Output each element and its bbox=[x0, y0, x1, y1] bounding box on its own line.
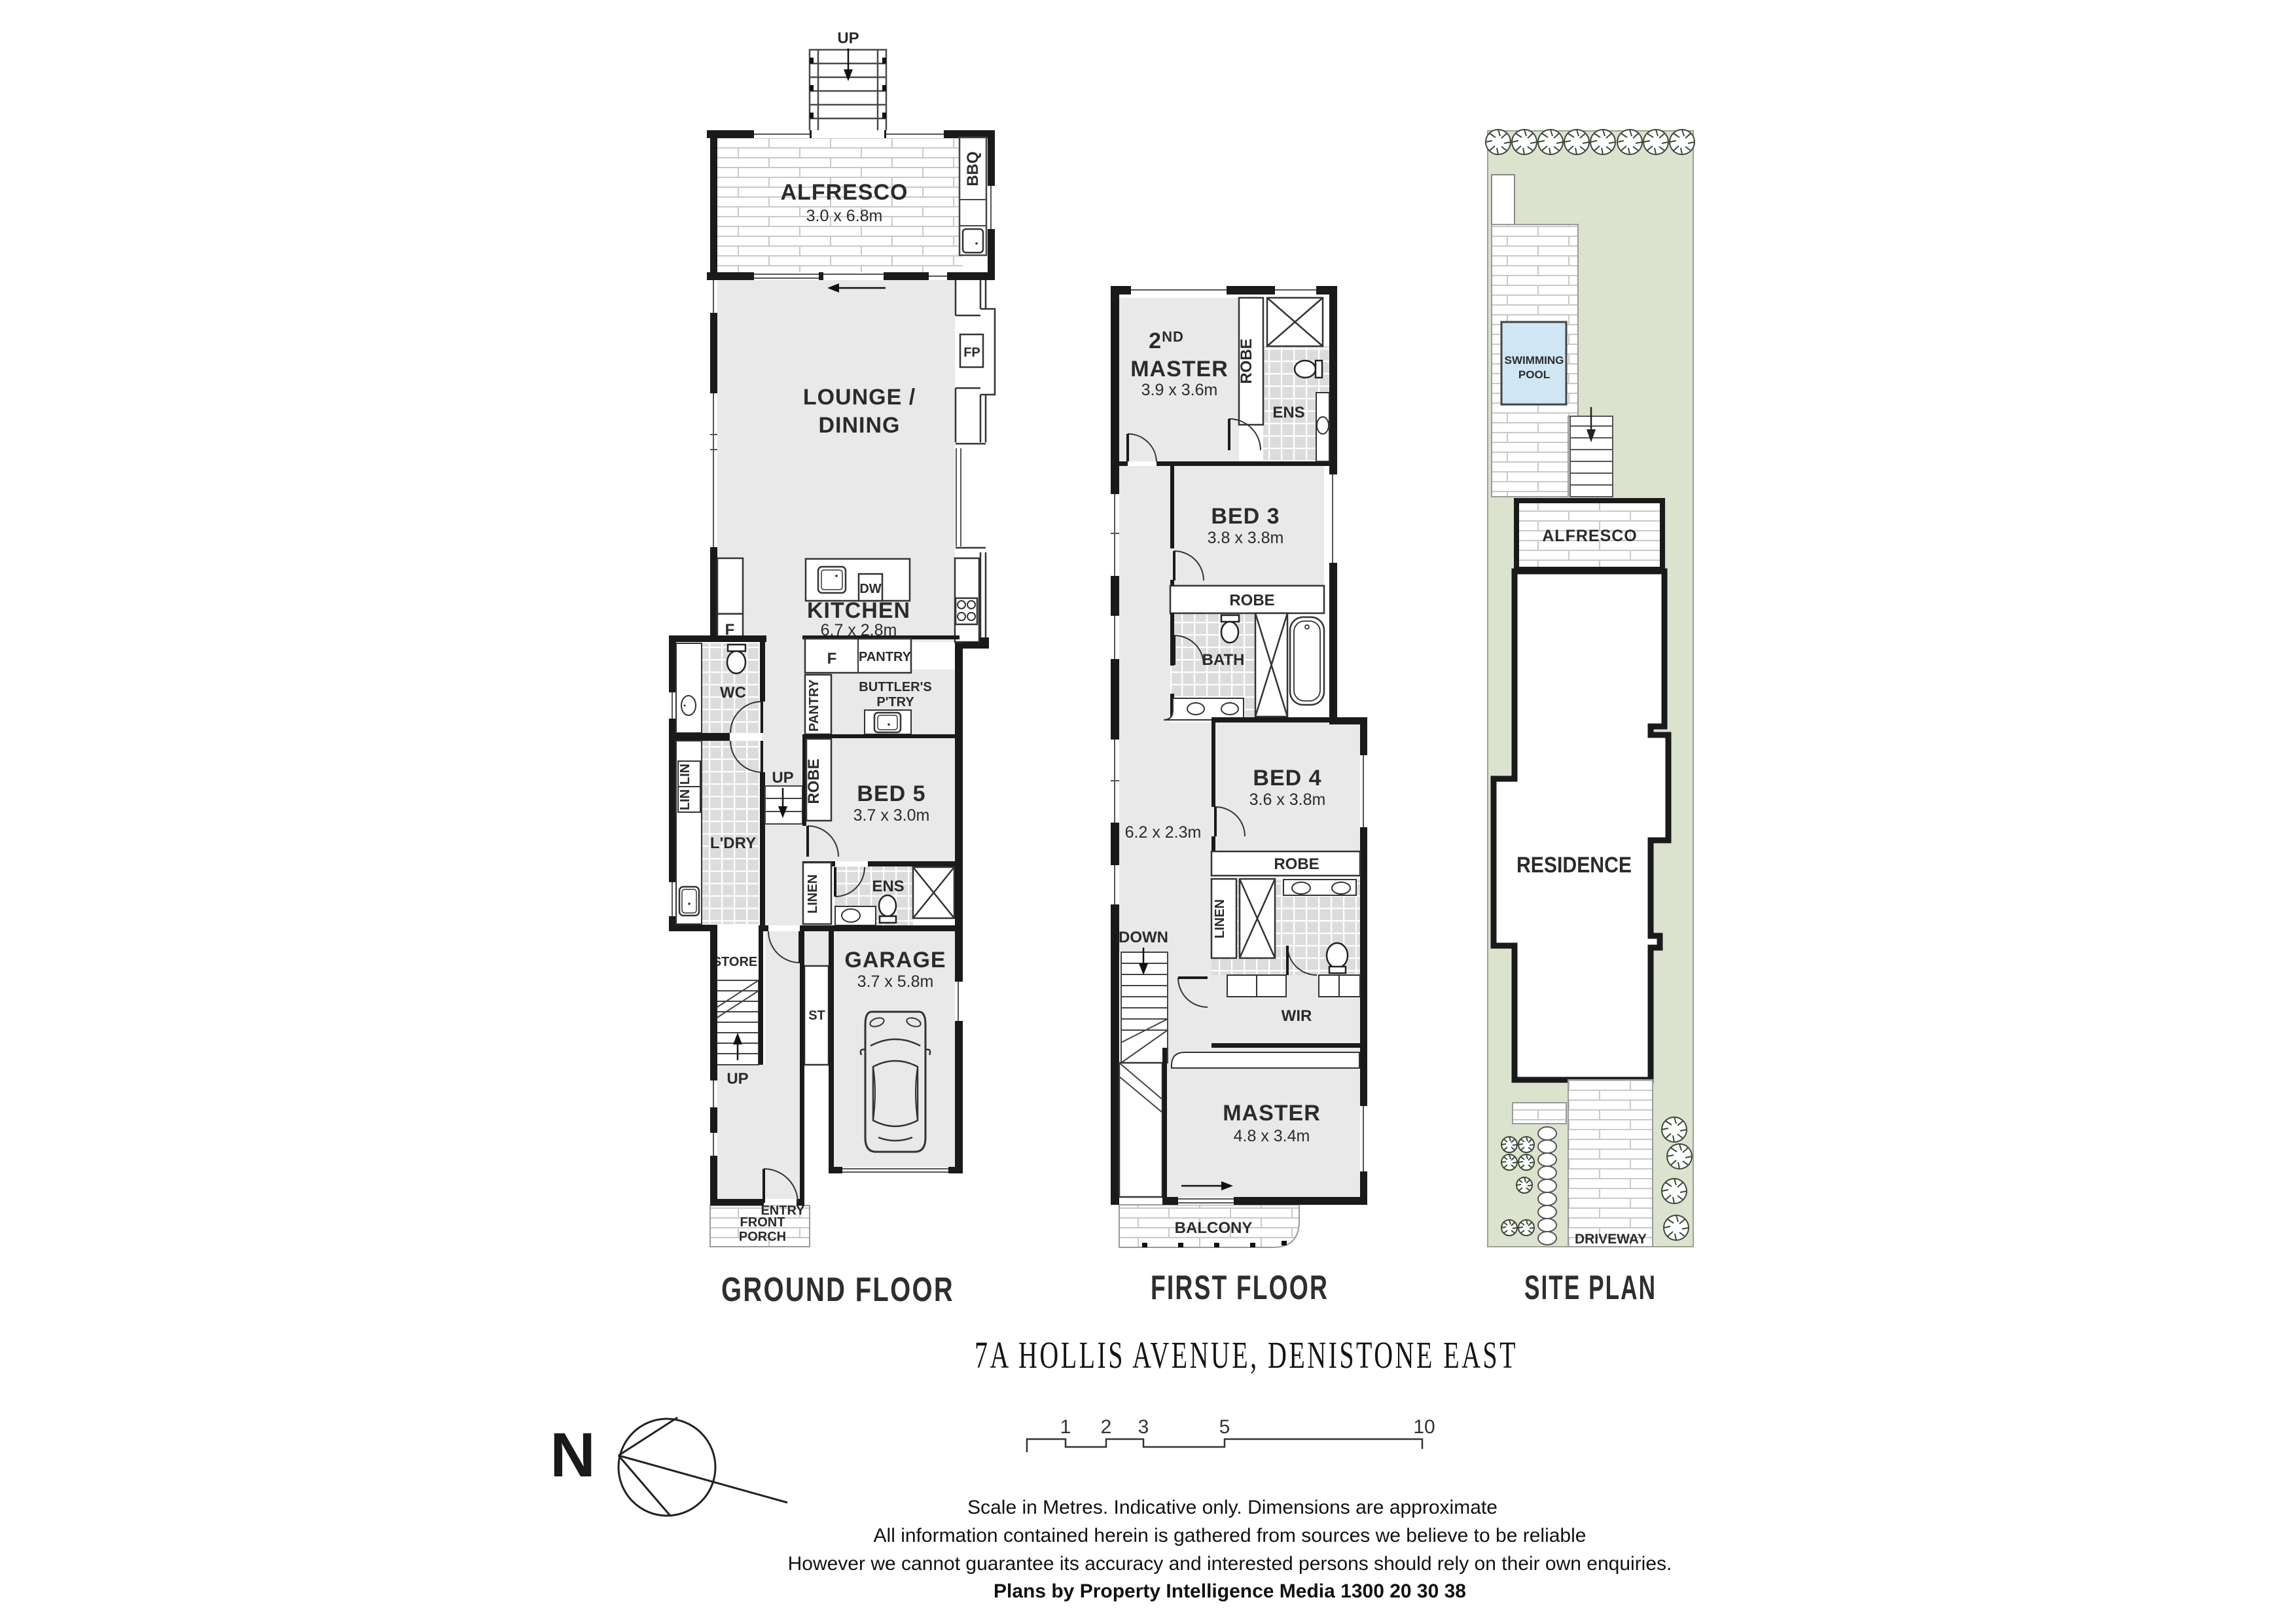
svg-text:RESIDENCE: RESIDENCE bbox=[1516, 853, 1632, 878]
svg-text:LOUNGE /: LOUNGE / bbox=[803, 385, 916, 410]
svg-text:F: F bbox=[827, 650, 837, 668]
svg-text:3: 3 bbox=[1138, 1416, 1149, 1438]
svg-text:Scale in Metres. Indicative on: Scale in Metres. Indicative only. Dimens… bbox=[967, 1497, 1498, 1518]
svg-text:PANTRY: PANTRY bbox=[807, 679, 821, 732]
svg-text:BALCONY: BALCONY bbox=[1175, 1219, 1253, 1237]
svg-text:MASTER: MASTER bbox=[1223, 1101, 1321, 1126]
svg-text:Plans by Property Intelligence: Plans by Property Intelligence Media 130… bbox=[994, 1580, 1466, 1602]
svg-text:ENS: ENS bbox=[1272, 404, 1304, 421]
svg-text:P'TRY: P'TRY bbox=[876, 695, 914, 709]
svg-text:5: 5 bbox=[1219, 1416, 1230, 1438]
svg-text:DOWN: DOWN bbox=[1119, 929, 1168, 946]
svg-text:LINEN: LINEN bbox=[1213, 899, 1227, 938]
svg-text:BED 3: BED 3 bbox=[1211, 504, 1280, 529]
svg-text:FRONT: FRONT bbox=[740, 1215, 785, 1230]
svg-text:SWIMMING: SWIMMING bbox=[1505, 354, 1564, 366]
svg-text:KITCHEN: KITCHEN bbox=[807, 598, 910, 623]
svg-text:WIR: WIR bbox=[1282, 1007, 1312, 1025]
svg-text:BATH: BATH bbox=[1202, 651, 1245, 669]
svg-text:ST: ST bbox=[808, 1008, 825, 1023]
svg-text:BED 4: BED 4 bbox=[1253, 766, 1321, 791]
svg-text:STORE: STORE bbox=[713, 955, 758, 969]
svg-text:DINING: DINING bbox=[819, 413, 901, 438]
svg-text:3.0 x 6.8m: 3.0 x 6.8m bbox=[806, 207, 883, 225]
svg-text:UP: UP bbox=[726, 1070, 748, 1088]
svg-text:N: N bbox=[550, 1420, 595, 1490]
svg-text:LINEN: LINEN bbox=[806, 874, 820, 914]
svg-text:3.6 x 3.8m: 3.6 x 3.8m bbox=[1249, 791, 1326, 809]
svg-text:ROBE: ROBE bbox=[805, 758, 823, 804]
svg-text:3.8 x 3.8m: 3.8 x 3.8m bbox=[1208, 529, 1284, 547]
svg-text:ALFRESCO: ALFRESCO bbox=[1542, 527, 1638, 545]
svg-text:GROUND FLOOR: GROUND FLOOR bbox=[721, 1271, 954, 1309]
svg-text:BUTTLER'S: BUTTLER'S bbox=[859, 680, 931, 694]
svg-text:4.8 x 3.4m: 4.8 x 3.4m bbox=[1234, 1127, 1310, 1145]
svg-text:FIRST FLOOR: FIRST FLOOR bbox=[1151, 1269, 1329, 1307]
svg-text:DRIVEWAY: DRIVEWAY bbox=[1575, 1232, 1647, 1247]
svg-text:PANTRY: PANTRY bbox=[859, 650, 912, 664]
svg-text:FP: FP bbox=[963, 346, 980, 360]
svg-text:3.7 x 5.8m: 3.7 x 5.8m bbox=[857, 972, 934, 991]
svg-text:10: 10 bbox=[1413, 1416, 1435, 1438]
svg-text:LIN: LIN bbox=[678, 764, 692, 785]
svg-text:L'DRY: L'DRY bbox=[710, 834, 756, 852]
svg-text:UP: UP bbox=[837, 29, 859, 47]
svg-text:6.2 x 2.3m: 6.2 x 2.3m bbox=[1125, 823, 1202, 842]
svg-text:3.7 x 3.0m: 3.7 x 3.0m bbox=[853, 806, 930, 825]
svg-text:POOL: POOL bbox=[1518, 368, 1550, 381]
svg-text:ENS: ENS bbox=[872, 878, 904, 895]
svg-text:LIN: LIN bbox=[678, 789, 692, 810]
svg-text:7A HOLLIS AVENUE, DENISTONE EA: 7A HOLLIS AVENUE, DENISTONE EAST bbox=[975, 1334, 1518, 1376]
svg-text:BED 5: BED 5 bbox=[857, 781, 925, 806]
svg-text:2: 2 bbox=[1101, 1416, 1112, 1438]
svg-text:UP: UP bbox=[772, 769, 793, 787]
svg-text:SITE PLAN: SITE PLAN bbox=[1524, 1269, 1657, 1307]
svg-text:ROBE: ROBE bbox=[1238, 338, 1255, 383]
svg-text:MASTER: MASTER bbox=[1130, 357, 1229, 382]
svg-text:BBQ: BBQ bbox=[964, 151, 982, 186]
svg-text:ROBE: ROBE bbox=[1274, 855, 1319, 873]
svg-text:All information contained here: All information contained herein is gath… bbox=[874, 1525, 1587, 1546]
svg-text:PORCH: PORCH bbox=[739, 1230, 786, 1244]
svg-text:3.9 x 3.6m: 3.9 x 3.6m bbox=[1141, 381, 1218, 399]
svg-text:DW: DW bbox=[859, 582, 881, 596]
svg-text:ROBE: ROBE bbox=[1229, 592, 1274, 609]
svg-text:ALFRESCO: ALFRESCO bbox=[781, 180, 908, 205]
svg-text:GARAGE: GARAGE bbox=[844, 948, 946, 972]
svg-text:WC: WC bbox=[720, 684, 746, 702]
svg-text:1: 1 bbox=[1060, 1416, 1071, 1438]
svg-text:However we cannot guarantee it: However we cannot guarantee its accuracy… bbox=[788, 1553, 1672, 1575]
